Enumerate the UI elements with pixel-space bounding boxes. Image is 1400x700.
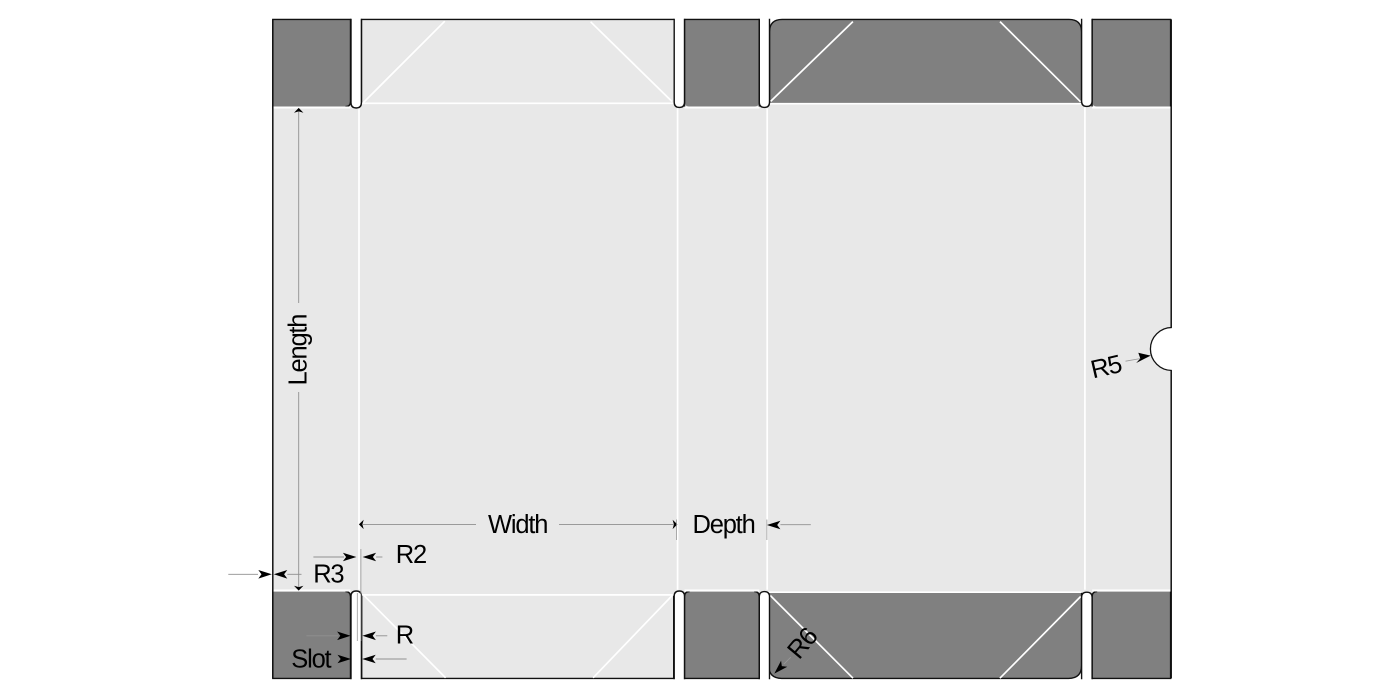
svg-text:Depth: Depth (693, 511, 755, 539)
svg-text:Slot: Slot (291, 645, 331, 673)
svg-text:R3: R3 (313, 561, 344, 589)
svg-text:R: R (396, 622, 414, 650)
svg-text:Width: Width (488, 511, 547, 539)
svg-text:R2: R2 (396, 541, 426, 569)
svg-text:Length: Length (285, 315, 313, 386)
